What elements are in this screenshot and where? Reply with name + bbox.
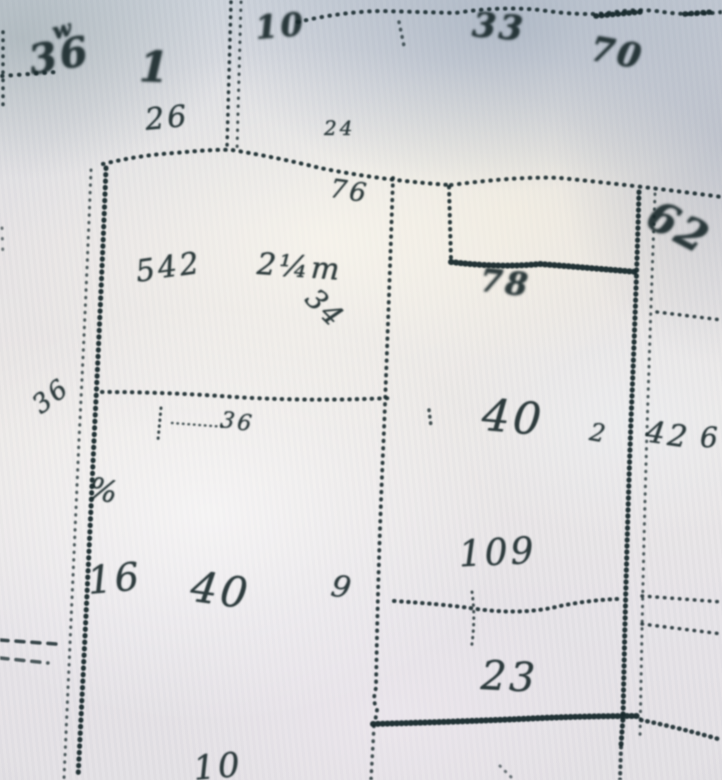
boundary-lines-layer xyxy=(0,0,722,780)
boundary-right-row-595 xyxy=(642,596,722,602)
boundary-left-edge-dots-mid xyxy=(2,228,3,258)
boundary-top-boundary-right xyxy=(451,178,722,197)
figure-36-top-left: 36 xyxy=(26,31,94,81)
figure-76-below-line: 76 xyxy=(328,176,370,207)
boundary-step-heavy-horizontal xyxy=(451,262,637,272)
figure-40-center-parcel: 40 xyxy=(480,394,546,443)
boundary-right-row-315 xyxy=(657,312,722,320)
boundary-left-vertical-light xyxy=(64,170,91,778)
boundary-top-edge-stub xyxy=(399,22,404,46)
figure-10-top: 10 xyxy=(254,8,307,44)
boundary-bracket-row xyxy=(172,423,226,427)
figure-16-bottom-left: 16 xyxy=(86,557,143,600)
boundary-bottom-left-dash-row-1 xyxy=(0,640,56,644)
figure-109-bottom: 109 xyxy=(458,534,537,574)
boundary-right-vertical-light xyxy=(640,194,655,740)
figure-23-bottom-parcel: 23 xyxy=(480,656,539,699)
boundary-right-vertical-heavy xyxy=(621,192,639,745)
figure-pct-left: % xyxy=(86,474,123,510)
boundary-right-row-625 xyxy=(642,624,722,634)
boundary-mid-line-600 xyxy=(394,599,618,612)
figure-2qm-left-parcel: 2¼m xyxy=(256,250,344,286)
boundary-top-center-vertical-b xyxy=(237,2,241,150)
boundary-bottom-right-dots xyxy=(641,720,722,740)
boundary-tick-428 xyxy=(429,410,431,426)
boundary-top-center-vertical-a xyxy=(227,2,231,148)
boundary-step-vertical xyxy=(449,187,451,260)
figure-40-bottom-parcel: 40 xyxy=(188,566,253,616)
figure-70-top-right: 70 xyxy=(588,32,646,75)
figure-1-top: 1 xyxy=(139,46,173,89)
boundary-bracket-tick xyxy=(158,408,161,440)
boundary-cross-tick-600 xyxy=(471,592,474,650)
boundary-right-vertical-heavy-below xyxy=(620,747,621,780)
boundary-center-vertical-below xyxy=(371,726,374,780)
figure-542-left-parcel: 542 xyxy=(134,249,204,288)
figure-36-under-line: 36 xyxy=(219,410,256,437)
plat-map-photo: w3611026247633705422¼m3478623636%4024261… xyxy=(0,0,722,780)
boundary-center-vertical xyxy=(374,178,393,722)
figure-33-top-right: 33 xyxy=(471,8,527,47)
figure-24-small: 24 xyxy=(324,118,355,138)
figure-78-step: 78 xyxy=(479,264,533,301)
boundary-top-edge-heavy-b xyxy=(685,12,712,14)
boundary-bottom-left-dash-row-2 xyxy=(0,658,48,663)
boundary-top-boundary-left xyxy=(103,150,449,185)
figure-42-right-strip: 42 xyxy=(644,418,692,454)
figure-6-right-edge: 6 xyxy=(700,424,721,452)
boundary-bottom-small-dots xyxy=(500,766,512,778)
boundary-bottom-heavy-line xyxy=(373,716,639,724)
figure-10-bottom-edge: 10 xyxy=(192,748,244,780)
boundary-left-parcel-bottom xyxy=(102,392,392,400)
figure-26-above-line: 26 xyxy=(144,102,191,136)
